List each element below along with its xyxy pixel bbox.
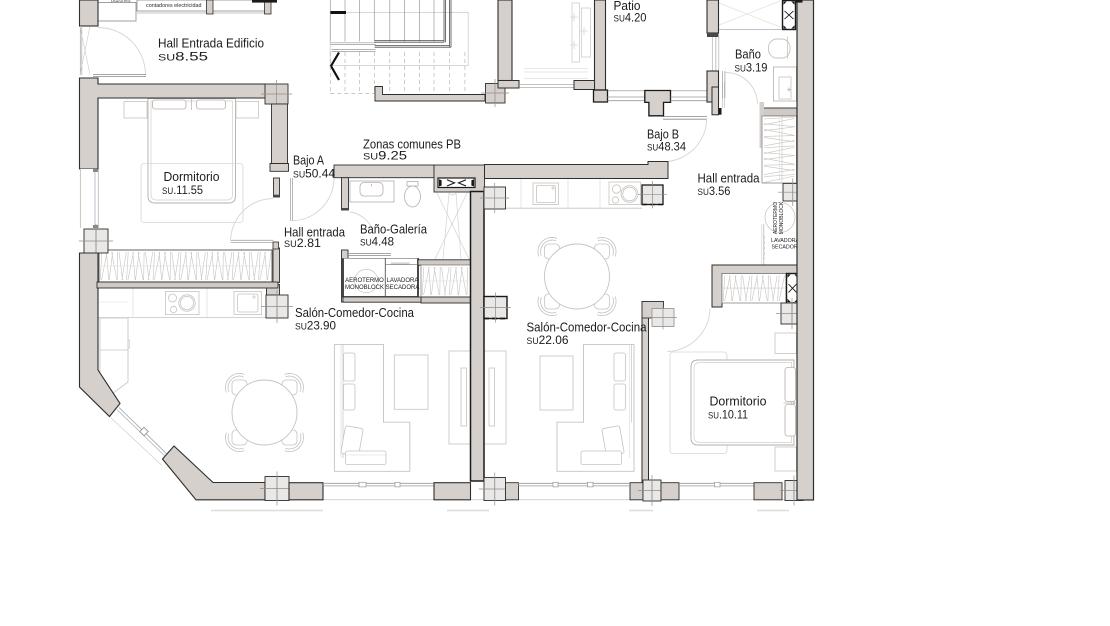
svg-text:Dormitorio: Dormitorio	[710, 394, 767, 409]
svg-text:Hall Entrada Edificio: Hall Entrada Edificio	[158, 36, 264, 51]
svg-text:SU3.19: SU3.19	[735, 61, 768, 75]
svg-text:buzones: buzones	[111, 0, 131, 4]
svg-text:SU.11.55: SU.11.55	[162, 183, 203, 197]
svg-text:MONOBLOCK: MONOBLOCK	[345, 285, 384, 291]
svg-text:Bajo A: Bajo A	[293, 153, 324, 168]
svg-text:Dormitorio: Dormitorio	[164, 169, 220, 184]
svg-text:SU2.81: SU2.81	[284, 236, 321, 250]
svg-text:LAVADORA: LAVADORA	[387, 278, 419, 284]
svg-text:SU9.25: SU9.25	[363, 149, 407, 163]
svg-text:SU4.48: SU4.48	[360, 235, 394, 249]
svg-text:SU8.55: SU8.55	[158, 50, 208, 64]
svg-text:SU3.56: SU3.56	[698, 184, 731, 198]
svg-text:SU50.44: SU50.44	[293, 167, 335, 181]
svg-text:SU4.20: SU4.20	[614, 11, 647, 25]
svg-text:SU22.06: SU22.06	[527, 333, 569, 347]
svg-text:MONOBLOCK: MONOBLOCK	[779, 201, 785, 234]
svg-text:contadores electricidad: contadores electricidad	[146, 3, 201, 9]
svg-text:SU48.34: SU48.34	[647, 140, 686, 154]
svg-text:SECADORA: SECADORA	[386, 285, 420, 291]
svg-text:LAVADORA: LAVADORA	[771, 238, 800, 244]
svg-text:Baño: Baño	[735, 47, 761, 62]
svg-text:SU23.90: SU23.90	[295, 319, 336, 333]
svg-text:SU.10.11: SU.10.11	[708, 408, 748, 422]
svg-text:AEROTERMO: AEROTERMO	[345, 278, 384, 284]
